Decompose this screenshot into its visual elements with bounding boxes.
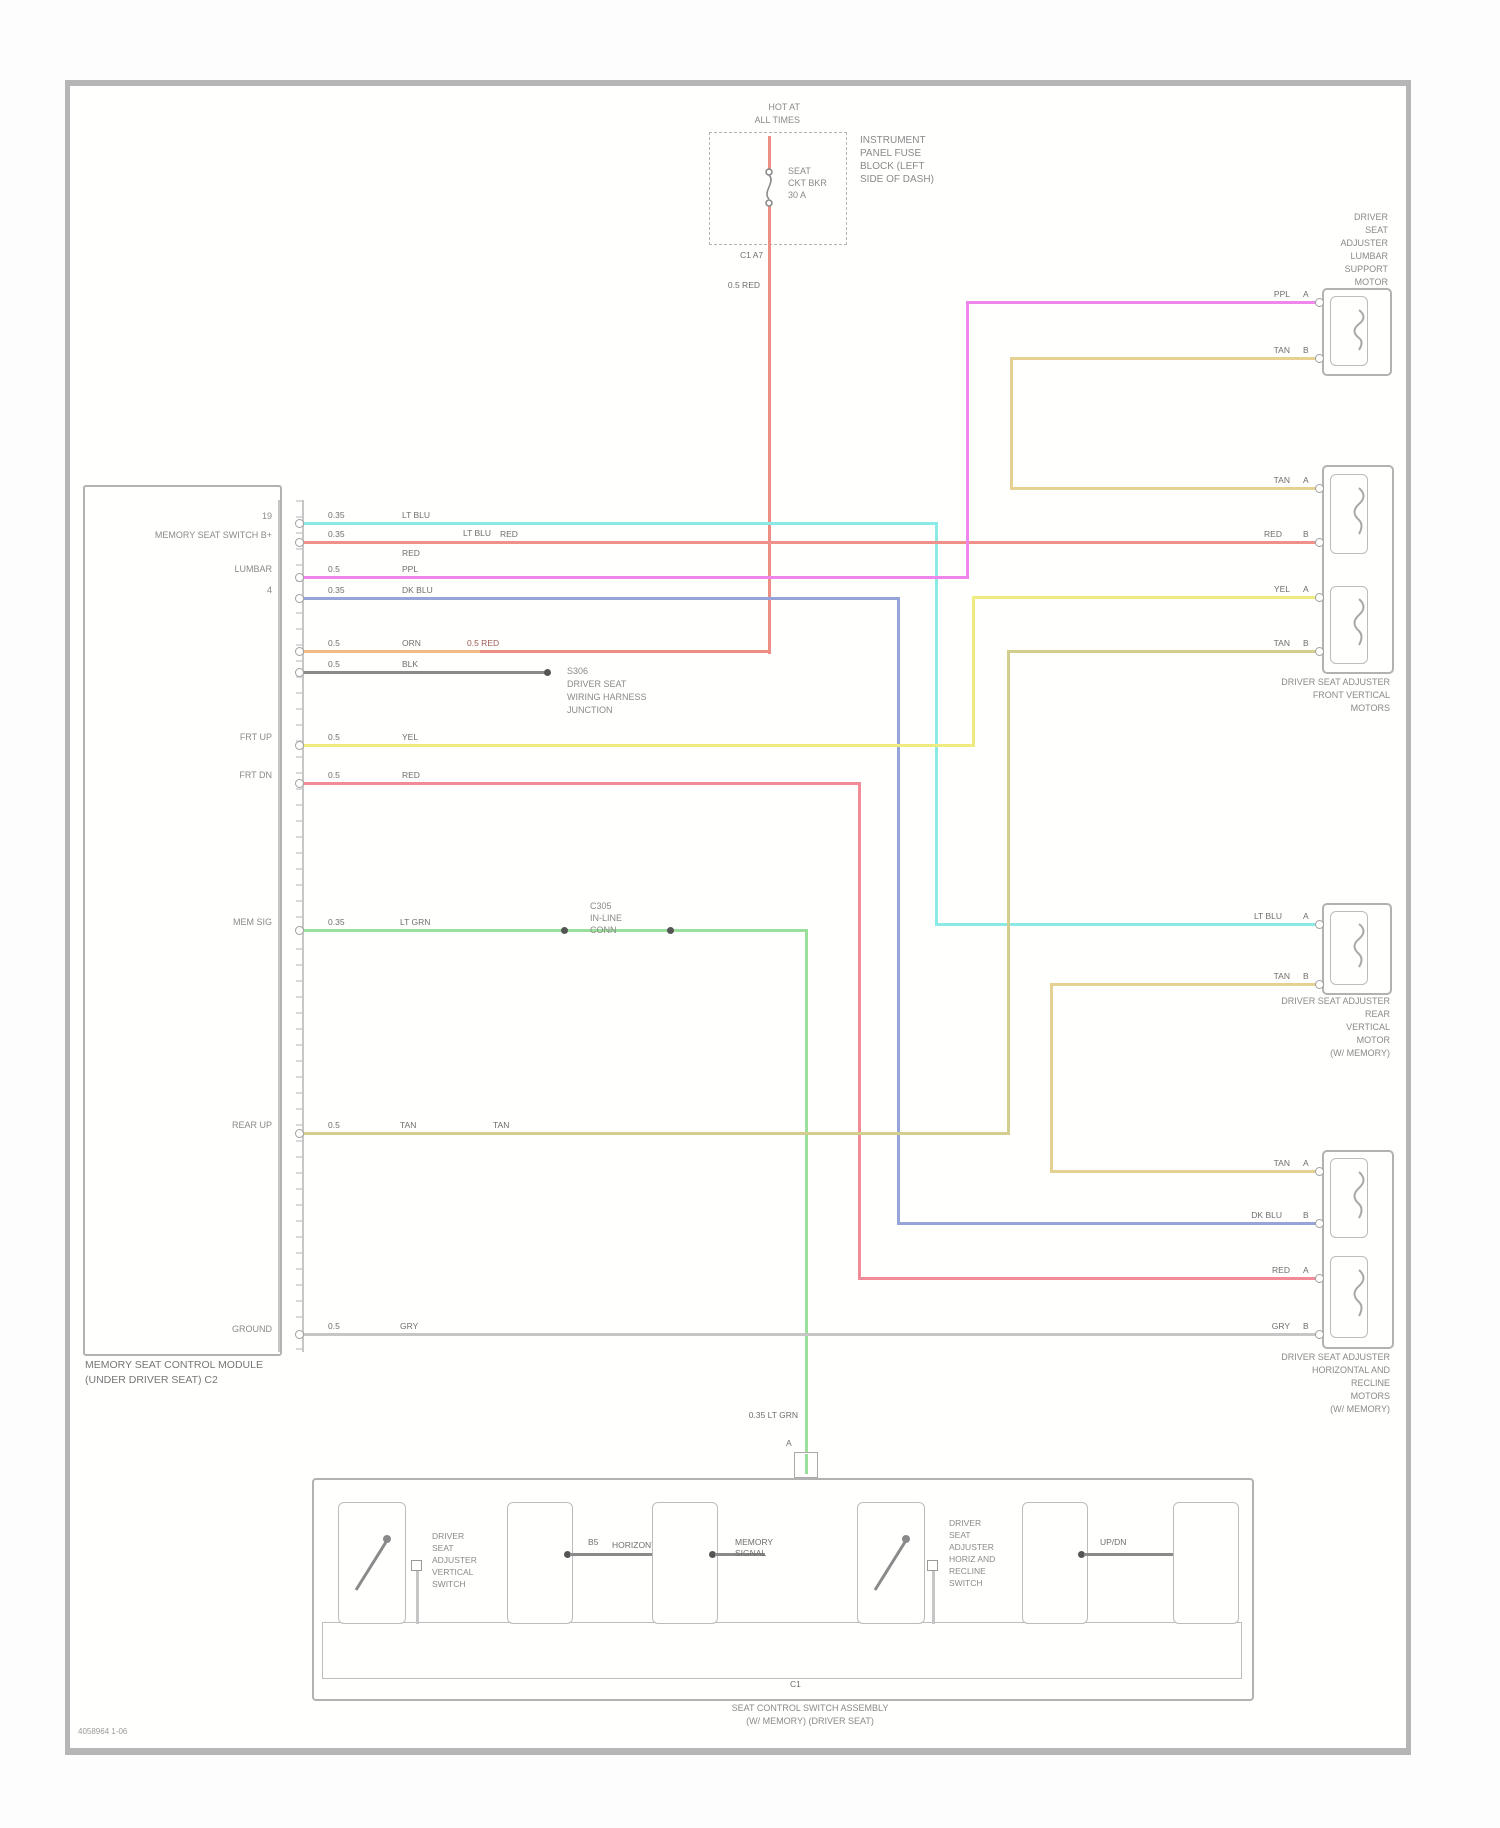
m2-label-3: MOTORS bbox=[1262, 703, 1390, 714]
switch-title-2: (W/ MEMORY) (DRIVER SEAT) bbox=[660, 1716, 960, 1727]
switch-lever-icon bbox=[865, 1512, 917, 1612]
rt-tan2: TAN bbox=[1230, 475, 1290, 485]
pin-ring bbox=[1315, 484, 1324, 493]
fuse-block-label-2: PANEL FUSE bbox=[860, 148, 921, 159]
switch-contact-box bbox=[507, 1502, 573, 1624]
m3-label-1: DRIVER SEAT ADJUSTER bbox=[1262, 996, 1390, 1007]
motor-icon bbox=[1348, 1170, 1370, 1224]
module-pin-ring bbox=[295, 594, 304, 603]
r6-color: BLK bbox=[402, 659, 418, 669]
r3-color: PPL bbox=[402, 564, 418, 574]
m3-label-5: (W/ MEMORY) bbox=[1262, 1048, 1390, 1059]
r8-gauge: 0.5 bbox=[328, 770, 340, 780]
r7-gauge: 0.5 bbox=[328, 732, 340, 742]
fuse-wire-label: 0.5 RED bbox=[700, 280, 760, 290]
switch-contact-box bbox=[652, 1502, 718, 1624]
pin-letter: A bbox=[1303, 1265, 1309, 1275]
m4-label-5: (W/ MEMORY) bbox=[1262, 1404, 1390, 1415]
wire-pink-to-motor bbox=[858, 1277, 1324, 1280]
fuse-block-label-1: INSTRUMENT bbox=[860, 135, 926, 146]
wire-ppl-to-motor bbox=[966, 301, 1324, 304]
switch-title-1: SEAT CONTROL SWITCH ASSEMBLY bbox=[660, 1703, 960, 1714]
pin-letter: B bbox=[1303, 638, 1309, 648]
ls-1: DRIVER bbox=[432, 1531, 464, 1542]
m1-label-5: SUPPORT bbox=[1290, 264, 1388, 275]
lever-stub bbox=[932, 1568, 935, 1624]
rs-6: SWITCH bbox=[949, 1578, 983, 1589]
rt-tan3: TAN bbox=[1230, 638, 1290, 648]
motor-icon bbox=[1348, 1268, 1370, 1322]
pin-letter: A bbox=[1303, 475, 1309, 485]
wire-dkblu-vert bbox=[897, 597, 900, 1225]
fuse-block-label-4: SIDE OF DASH) bbox=[860, 174, 934, 185]
r1-gauge: 0.35 bbox=[328, 510, 345, 520]
splice-dot bbox=[544, 669, 551, 676]
wire-tan-vert bbox=[1007, 650, 1010, 1135]
r11-gauge: 0.5 bbox=[328, 1321, 340, 1331]
switch-lever-icon bbox=[346, 1512, 398, 1612]
rt-yel: YEL bbox=[1230, 584, 1290, 594]
r5-gauge: 0.5 bbox=[328, 638, 340, 648]
m4-label-4: MOTORS bbox=[1262, 1391, 1390, 1402]
wire-orn-row bbox=[302, 650, 480, 653]
switch-common-bar bbox=[322, 1622, 1242, 1679]
inline-conn-dot-2 bbox=[667, 927, 674, 934]
wire-ltblu-row bbox=[302, 522, 938, 525]
m3-label-4: MOTOR bbox=[1262, 1035, 1390, 1046]
r8-color: RED bbox=[402, 770, 420, 780]
pin-letter: B bbox=[1303, 1321, 1309, 1331]
m3-label-2: REAR bbox=[1262, 1009, 1390, 1020]
wire-ppl-row bbox=[302, 576, 969, 579]
module-fn-frtup: FRT UP bbox=[200, 732, 272, 743]
splice-l3: WIRING HARNESS bbox=[567, 692, 647, 703]
module-title-1: MEMORY SEAT CONTROL MODULE bbox=[85, 1360, 263, 1371]
rt-tan1: TAN bbox=[1230, 345, 1290, 355]
pin-letter: B bbox=[1303, 1210, 1309, 1220]
switch-c1-label: C1 bbox=[790, 1679, 801, 1689]
pin-letter: A bbox=[1303, 911, 1309, 921]
pin-ring bbox=[1315, 1274, 1324, 1283]
rs-3: ADJUSTER bbox=[949, 1542, 994, 1553]
grn-pin-letter: A bbox=[786, 1438, 792, 1448]
r10-color-mid: TAN bbox=[493, 1120, 509, 1130]
pin-letter: A bbox=[1303, 289, 1309, 299]
wire-tan-link-b-bot bbox=[1050, 1170, 1324, 1173]
m4-label-1: DRIVER SEAT ADJUSTER bbox=[1262, 1352, 1390, 1363]
ls-5: SWITCH bbox=[432, 1579, 466, 1590]
pin-letter: A bbox=[1303, 1158, 1309, 1168]
fuse-name-1: SEAT bbox=[788, 166, 811, 177]
fuse-block-label-3: BLOCK (LEFT bbox=[860, 161, 924, 172]
rt-ppl: PPL bbox=[1230, 289, 1290, 299]
rs-4: HORIZ AND bbox=[949, 1554, 995, 1565]
module-fn-lumbar: LUMBAR bbox=[200, 564, 272, 575]
pin-ring bbox=[1315, 1219, 1324, 1228]
wire-yel-to-motor bbox=[972, 596, 1324, 599]
module-pin-ring bbox=[295, 1330, 304, 1339]
motor-icon bbox=[1348, 597, 1370, 651]
wire-ltblu-to-motor bbox=[935, 923, 1324, 926]
m4-label-2: HORIZONTAL AND bbox=[1262, 1365, 1390, 1376]
wire-tan-row bbox=[302, 1132, 1010, 1135]
rt-dkblu: DK BLU bbox=[1222, 1210, 1282, 1220]
wire-dkblu-row bbox=[302, 597, 900, 600]
wire-grn-through-conn bbox=[805, 1454, 808, 1474]
page-footer: 4058964 1-06 bbox=[78, 1726, 127, 1737]
rt-tan4: TAN bbox=[1230, 971, 1290, 981]
grn-drop-label: 0.35 LT GRN bbox=[690, 1410, 798, 1420]
module-fn-b: MEMORY SEAT SWITCH B+ bbox=[112, 530, 272, 541]
lever-contact bbox=[411, 1560, 422, 1571]
pin-ring bbox=[1315, 1330, 1324, 1339]
r6-gauge: 0.5 bbox=[328, 659, 340, 669]
wire-tan-to-motor bbox=[1007, 650, 1324, 653]
rt-tan5: TAN bbox=[1230, 1158, 1290, 1168]
contact-link-line bbox=[570, 1553, 654, 1556]
module-fn-rearup: REAR UP bbox=[200, 1120, 272, 1131]
module-pin-ring bbox=[295, 668, 304, 677]
rs-1: DRIVER bbox=[949, 1518, 981, 1529]
module-pin-ring bbox=[295, 538, 304, 547]
wire-tan-link-a-bot bbox=[1010, 487, 1324, 490]
r2-gauge: 0.35 bbox=[328, 529, 345, 539]
rs-5: RECLINE bbox=[949, 1566, 986, 1577]
wire-pink-row bbox=[302, 782, 861, 785]
inline-l2: IN-LINE bbox=[590, 913, 622, 924]
switch-contact-box bbox=[1022, 1502, 1088, 1624]
r9-gauge: 0.35 bbox=[328, 917, 345, 927]
ls-4: VERTICAL bbox=[432, 1567, 473, 1578]
module-pin-ring bbox=[295, 519, 304, 528]
lk-1: B5 bbox=[588, 1537, 598, 1547]
wire-red-feed-row bbox=[480, 650, 771, 653]
rt-ltblu: LT BLU bbox=[1222, 911, 1282, 921]
module-pin-ring bbox=[295, 647, 304, 656]
inline-conn-dot-1 bbox=[561, 927, 568, 934]
splice-l4: JUNCTION bbox=[567, 705, 613, 716]
module-pin-ring bbox=[295, 779, 304, 788]
circuit-breaker-icon bbox=[758, 166, 782, 210]
ls-3: ADJUSTER bbox=[432, 1555, 477, 1566]
fuse-name-3: 30 A bbox=[788, 190, 806, 201]
wire-tan-link-b-top bbox=[1050, 983, 1324, 986]
inline-l3: CONN bbox=[590, 925, 617, 936]
pin-ring bbox=[1315, 920, 1324, 929]
r2-color: RED bbox=[402, 548, 420, 558]
m1-label-6: MOTOR bbox=[1290, 277, 1388, 288]
pin-letter: A bbox=[1303, 584, 1309, 594]
rt-gry: GRY bbox=[1230, 1321, 1290, 1331]
wire-red-fuse-drop bbox=[768, 206, 771, 654]
wire-grn-drop bbox=[805, 929, 808, 1453]
m3-label-3: VERTICAL bbox=[1262, 1022, 1390, 1033]
m1-label-1: DRIVER bbox=[1290, 212, 1388, 223]
m2-label-2: FRONT VERTICAL bbox=[1262, 690, 1390, 701]
inline-l1: C305 bbox=[590, 901, 612, 912]
lever-stub bbox=[416, 1568, 419, 1624]
module-pin4-label: 4 bbox=[200, 585, 272, 596]
pin-ring bbox=[1315, 538, 1324, 547]
ls-2: SEAT bbox=[432, 1543, 454, 1554]
wire-blk-row bbox=[302, 671, 548, 674]
module-pin-ring bbox=[295, 741, 304, 750]
fuse-connector-label: C1 A7 bbox=[740, 250, 763, 260]
r10-color: TAN bbox=[400, 1120, 416, 1130]
pin-ring bbox=[1315, 1167, 1324, 1176]
switch-contact-box bbox=[1173, 1502, 1239, 1624]
wire-red-row bbox=[302, 541, 1324, 544]
r9-color: LT GRN bbox=[400, 917, 430, 927]
wire-red-fuse-top bbox=[768, 136, 771, 170]
module-pin-ring bbox=[295, 1129, 304, 1138]
wire-tan-link-b-vert bbox=[1050, 983, 1053, 1173]
motor-icon bbox=[1348, 308, 1370, 354]
lk-3: MEMORY bbox=[735, 1537, 773, 1547]
wire-ppl-vert bbox=[966, 301, 969, 579]
lk-4: SIGNAL bbox=[735, 1548, 766, 1558]
m1-label-3: ADJUSTER bbox=[1290, 238, 1388, 249]
rt-red2: RED bbox=[1230, 1265, 1290, 1275]
pin-ring bbox=[1315, 980, 1324, 989]
pin-ring bbox=[1315, 593, 1324, 602]
r3-gauge: 0.5 bbox=[328, 564, 340, 574]
splice-l2: DRIVER SEAT bbox=[567, 679, 626, 690]
module-title-2: (UNDER DRIVER SEAT) C2 bbox=[85, 1375, 218, 1386]
wire-pink-vert bbox=[858, 782, 861, 1280]
wiring-diagram-page: HOT AT ALL TIMES SEAT CKT BKR 30 A INSTR… bbox=[0, 0, 1500, 1828]
pin-letter: B bbox=[1303, 971, 1309, 981]
fuse-name-2: CKT BKR bbox=[788, 178, 827, 189]
pin-letter: B bbox=[1303, 529, 1309, 539]
r2-color-mid: RED bbox=[500, 529, 518, 539]
contact-link-line bbox=[1084, 1553, 1173, 1556]
r4-color: DK BLU bbox=[402, 585, 433, 595]
rs-2: SEAT bbox=[949, 1530, 971, 1541]
pin-ring bbox=[1315, 647, 1324, 656]
pin-letter: B bbox=[1303, 345, 1309, 355]
m2-label-1: DRIVER SEAT ADJUSTER bbox=[1262, 677, 1390, 688]
module-pin19-label: 19 bbox=[200, 511, 272, 522]
wire-gry-row bbox=[302, 1333, 1324, 1336]
module-pin-ring bbox=[295, 926, 304, 935]
module-pin-ring bbox=[295, 573, 304, 582]
r1-color: LT BLU bbox=[402, 510, 430, 520]
r7-color: YEL bbox=[402, 732, 418, 742]
r11-color: GRY bbox=[400, 1321, 418, 1331]
hot-at-label: HOT AT bbox=[700, 102, 800, 113]
motor-icon bbox=[1348, 922, 1370, 972]
wire-ltblu-vert bbox=[935, 522, 938, 926]
wire-tan-link-a-vert bbox=[1010, 357, 1013, 490]
lever-contact bbox=[927, 1560, 938, 1571]
splice-l1: S306 bbox=[567, 666, 588, 677]
module-fn-gnd: GROUND bbox=[200, 1324, 272, 1335]
r4-gauge: 0.35 bbox=[328, 585, 345, 595]
module-fn-frtdn: FRT DN bbox=[200, 770, 272, 781]
all-times-label: ALL TIMES bbox=[700, 115, 800, 126]
rt-red1: RED bbox=[1222, 529, 1282, 539]
pin-ring bbox=[1315, 298, 1324, 307]
wire-tan-link-a-top bbox=[1010, 357, 1324, 360]
r1-color-mid: LT BLU bbox=[463, 528, 491, 538]
r5-color: ORN bbox=[402, 638, 421, 648]
wire-grn-row bbox=[302, 929, 808, 932]
lk-5: UP/DN bbox=[1100, 1537, 1126, 1547]
wire-yel-vert bbox=[972, 596, 975, 747]
wire-dkblu-to-motor bbox=[897, 1222, 1324, 1225]
m4-label-3: RECLINE bbox=[1262, 1378, 1390, 1389]
r5-color-change: 0.5 RED bbox=[467, 638, 499, 648]
module-fn-mem: MEM SIG bbox=[200, 917, 272, 928]
m1-label-2: SEAT bbox=[1290, 225, 1388, 236]
wire-yel-row bbox=[302, 744, 975, 747]
m1-label-4: LUMBAR bbox=[1290, 251, 1388, 262]
motor-icon bbox=[1348, 486, 1370, 540]
pin-ring bbox=[1315, 354, 1324, 363]
r10-gauge: 0.5 bbox=[328, 1120, 340, 1130]
